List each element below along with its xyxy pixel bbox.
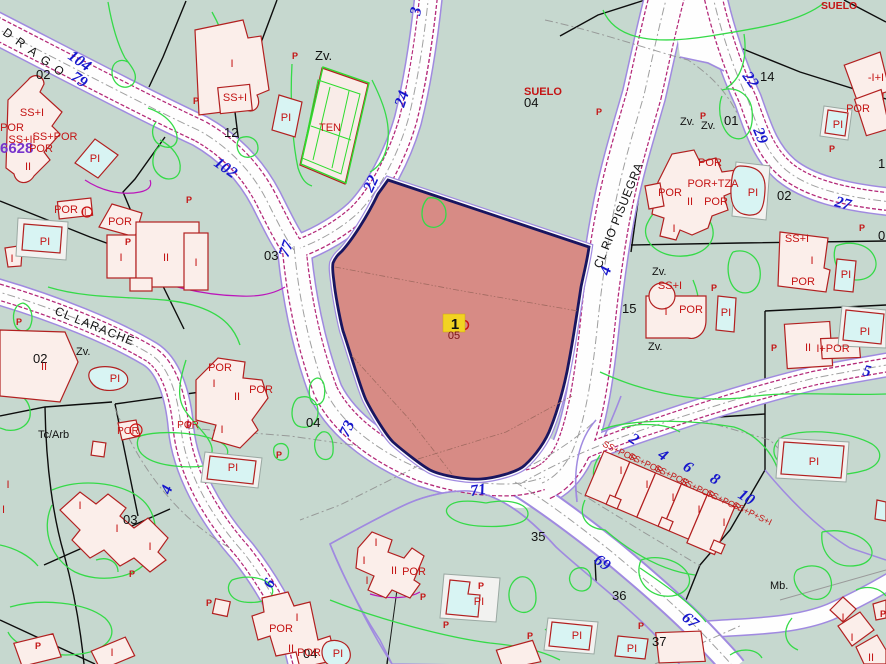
svg-text:POR: POR: [249, 384, 273, 396]
svg-text:SS+I: SS+I: [223, 92, 247, 104]
svg-text:I: I: [672, 223, 675, 235]
svg-text:POR: POR: [117, 426, 139, 437]
svg-text:II: II: [163, 252, 169, 264]
svg-text:Zv.: Zv.: [315, 48, 332, 63]
svg-text:SS+I: SS+I: [20, 107, 44, 119]
svg-text:I: I: [2, 504, 5, 516]
svg-text:P: P: [859, 223, 865, 233]
svg-text:01: 01: [724, 113, 738, 128]
svg-text:PI: PI: [40, 236, 50, 248]
svg-text:I+POR: I+POR: [816, 343, 849, 355]
svg-text:37: 37: [652, 634, 666, 649]
svg-text:POR: POR: [269, 623, 293, 635]
svg-text:POR: POR: [208, 362, 232, 374]
svg-text:P: P: [711, 283, 717, 293]
svg-text:I: I: [841, 612, 844, 624]
svg-text:POR: POR: [704, 196, 728, 208]
svg-text:II: II: [288, 643, 294, 655]
svg-text:PI: PI: [860, 326, 870, 338]
svg-text:I: I: [810, 255, 813, 267]
svg-text:P: P: [186, 195, 192, 205]
svg-text:I: I: [148, 541, 151, 553]
svg-text:II: II: [234, 391, 240, 403]
svg-text:P: P: [16, 317, 22, 327]
svg-text:I: I: [119, 252, 122, 264]
svg-text:II: II: [391, 565, 397, 577]
svg-text:15: 15: [622, 301, 636, 316]
svg-text:PI: PI: [627, 643, 637, 655]
svg-text:04: 04: [306, 415, 320, 430]
svg-text:P: P: [276, 450, 282, 460]
svg-text:PI: PI: [809, 456, 819, 468]
svg-text:PI: PI: [110, 373, 120, 385]
svg-text:Mb.: Mb.: [770, 580, 788, 592]
svg-text:03: 03: [264, 248, 278, 263]
svg-text:Zv.: Zv.: [652, 266, 666, 278]
svg-text:POR: POR: [54, 204, 78, 216]
svg-text:POR: POR: [297, 647, 321, 659]
svg-text:TEN: TEN: [319, 122, 341, 134]
svg-text:I: I: [295, 612, 298, 624]
svg-text:P: P: [125, 237, 131, 247]
svg-text:SS+I: SS+I: [658, 280, 682, 292]
svg-text:P: P: [443, 620, 449, 630]
svg-text:POR: POR: [108, 216, 132, 228]
svg-text:I: I: [78, 500, 81, 512]
svg-text:PI: PI: [841, 269, 851, 281]
svg-text:P: P: [186, 420, 192, 430]
svg-text:POR: POR: [679, 304, 703, 316]
svg-text:P: P: [478, 581, 484, 591]
svg-text:PI: PI: [228, 462, 238, 474]
svg-text:II: II: [41, 361, 47, 373]
svg-text:P: P: [129, 569, 135, 579]
svg-text:Zv.: Zv.: [76, 346, 90, 358]
svg-text:Tc/Arb: Tc/Arb: [38, 429, 69, 441]
svg-text:I: I: [374, 537, 377, 549]
svg-text:I: I: [850, 632, 853, 644]
svg-text:POR: POR: [791, 276, 815, 288]
svg-text:I: I: [10, 253, 13, 265]
svg-text:12: 12: [224, 125, 238, 140]
svg-text:I: I: [697, 504, 700, 516]
svg-text:I: I: [212, 378, 215, 390]
svg-text:II: II: [805, 342, 811, 354]
svg-text:SUELO: SUELO: [524, 86, 562, 98]
svg-text:P: P: [700, 111, 706, 121]
svg-text:I: I: [110, 647, 113, 659]
svg-text:I: I: [671, 492, 674, 504]
svg-text:SS+I: SS+I: [785, 233, 809, 245]
svg-text:POR: POR: [29, 143, 53, 155]
svg-text:05: 05: [448, 330, 460, 342]
svg-text:PI: PI: [572, 630, 582, 642]
svg-text:I: I: [230, 58, 233, 70]
svg-text:PI: PI: [281, 112, 291, 124]
svg-text:PI: PI: [833, 119, 843, 131]
svg-text:II: II: [25, 161, 31, 173]
svg-text:I: I: [619, 465, 622, 477]
svg-text:POR+TZA: POR+TZA: [687, 178, 739, 190]
svg-text:II: II: [868, 652, 874, 664]
svg-text:POR: POR: [658, 187, 682, 199]
svg-text:Zv.: Zv.: [680, 116, 694, 128]
svg-text:P: P: [420, 592, 426, 602]
svg-text:PI: PI: [748, 187, 758, 199]
svg-text:PI: PI: [721, 307, 731, 319]
svg-text:POR: POR: [402, 566, 426, 578]
svg-text:03: 03: [123, 512, 137, 527]
svg-text:I: I: [194, 257, 197, 269]
svg-text:P: P: [206, 598, 212, 608]
svg-text:P: P: [35, 641, 41, 651]
svg-text:36: 36: [612, 588, 626, 603]
svg-text:I: I: [362, 555, 365, 567]
svg-text:I: I: [645, 479, 648, 491]
svg-text:PI: PI: [90, 153, 100, 165]
svg-text:PI: PI: [474, 596, 484, 608]
svg-text:P: P: [596, 107, 602, 117]
svg-text:Zv.: Zv.: [648, 341, 662, 353]
svg-text:P: P: [292, 51, 298, 61]
svg-text:I: I: [881, 91, 884, 103]
svg-text:I: I: [722, 517, 725, 529]
svg-text:1: 1: [878, 156, 885, 171]
svg-text:I: I: [220, 424, 223, 436]
svg-text:II: II: [687, 196, 693, 208]
svg-text:SS+POR: SS+POR: [33, 131, 78, 143]
svg-text:POR: POR: [0, 122, 24, 134]
svg-text:P: P: [193, 96, 199, 106]
svg-text:P: P: [880, 609, 886, 619]
svg-text:02: 02: [36, 67, 50, 82]
svg-text:P: P: [829, 144, 835, 154]
svg-text:71: 71: [469, 481, 487, 500]
svg-text:P: P: [527, 631, 533, 641]
svg-text:P: P: [771, 343, 777, 353]
svg-text:0: 0: [878, 228, 885, 243]
svg-text:Zv.: Zv.: [701, 120, 715, 132]
svg-text:PI: PI: [333, 648, 343, 660]
svg-text:35: 35: [531, 529, 545, 544]
svg-text:SUELO: SUELO: [821, 0, 857, 12]
svg-text:POR: POR: [846, 103, 870, 115]
svg-text:I: I: [115, 523, 118, 535]
svg-text:POR: POR: [698, 157, 722, 169]
svg-text:-I+I: -I+I: [868, 72, 884, 84]
svg-text:02: 02: [777, 188, 791, 203]
svg-text:I: I: [6, 479, 9, 491]
svg-text:I: I: [365, 575, 368, 587]
svg-text:14: 14: [760, 69, 774, 84]
svg-text:I: I: [664, 306, 667, 318]
svg-text:P: P: [638, 621, 644, 631]
